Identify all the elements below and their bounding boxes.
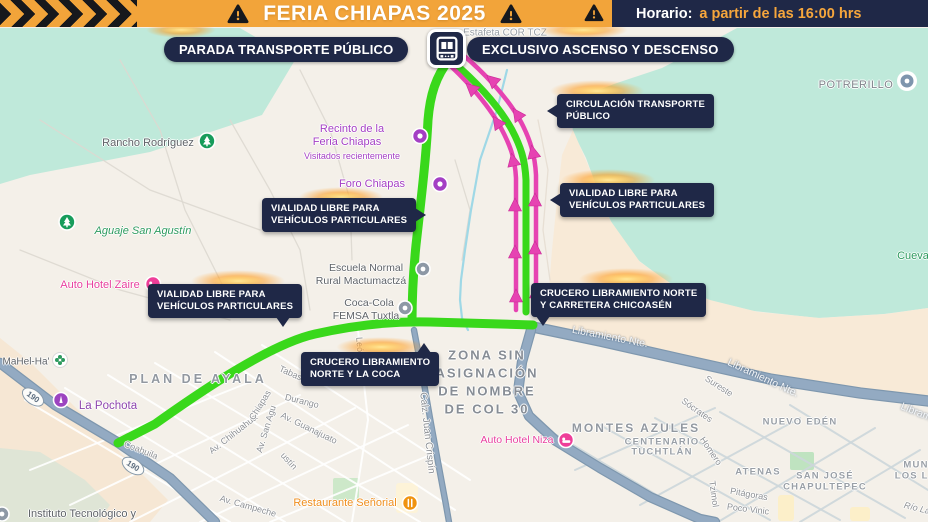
monument-pin-icon [52,391,70,409]
commercial-area [850,507,870,521]
callout-text: VEHÍCULOS PARTICULARES [271,215,407,227]
hazard-stripes [0,0,137,27]
route-callout: CIRCULACIÓN TRANSPORTEPÚBLICO [557,94,714,128]
callout-text: PÚBLICO [566,111,705,123]
purple-pin-icon [431,175,449,193]
transit-direction-arrow-icon [509,245,522,258]
callout-pointer-icon [415,208,426,222]
page-title: FERIA CHIAPAS 2025 [263,2,486,26]
map-label: Rural Mactumactzá [316,275,406,287]
map-label: Auto Hotel Niza [481,434,554,446]
transit-direction-arrow-icon [529,241,542,254]
map-label: NUEVO EDÉN [763,417,838,428]
map-label: DE NOMBRE [438,384,535,399]
locality-pin-icon [896,70,918,92]
map-label: ATENAS [735,467,781,478]
callout-text: NORTE Y LA COCA [310,369,430,381]
map-label: DE COL 30 [445,402,530,417]
route-callout: CRUCERO LIBRAMIENTO NORTEY CARRETERA CHI… [531,283,706,317]
map-label: Instituto Tecnológico y [28,508,136,520]
map-label: PLAN DE AYALA [129,372,267,386]
schedule-bar: Horario: a partir de las 16:00 hrs [612,0,928,27]
commercial-area [778,495,794,521]
map-label: Escuela Normal [329,262,403,274]
callout-text: Y CARRETERA CHICOASÉN [540,300,697,312]
route-callout: CRUCERO LIBRAMIENTONORTE Y LA COCA [301,352,439,386]
warning-triangle-icon [584,4,606,24]
callout-pointer-icon [276,317,290,327]
callout-text: VEHÍCULOS PARTICULARES [157,301,293,313]
map-label: MUNIC [903,460,928,471]
minor-street [455,160,470,260]
callout-text: VEHÍCULOS PARTICULARES [569,200,705,212]
map-label: LOS LAG [895,471,928,482]
schedule-value: a partir de las 16:00 hrs [699,6,861,22]
map-label: TUCHTLÁN [631,447,692,458]
map-label: Auto Hotel Zaire [60,279,139,291]
map-label: Feria Chiapas [313,136,381,148]
top-banner: FERIA CHIAPAS 2025 Horario: a partir de … [0,0,928,27]
public-transport-stop-badge: PARADA TRANSPORTE PÚBLICO [164,37,408,62]
map-label: La Pochota [79,400,137,412]
tree-pin-icon [58,213,76,231]
map-label: FEMSA Tuxtla [333,310,400,322]
map-label: SAN JOSÉ [796,471,854,482]
callout-text: VIALIDAD LIBRE PARA [271,203,407,215]
route-callout: VIALIDAD LIBRE PARAVEHÍCULOS PARTICULARE… [148,284,302,318]
feria-chiapas-map-flyer: Estafeta COR TCZPOTRERILLOCuevaRancho Ro… [0,0,928,522]
callout-text: VIALIDAD LIBRE PARA [157,289,293,301]
poi-pin-icon [414,260,432,278]
transit-direction-arrow-icon [510,289,523,302]
callout-pointer-icon [536,316,550,326]
map-label: Visitados recientemente [304,151,400,161]
map-label: Cueva [897,250,928,262]
map-label: Aguaje San Agustín [95,225,192,237]
map-label: Rancho Rodríguez [102,137,194,149]
banner-title-bar: FERIA CHIAPAS 2025 [137,0,612,27]
route-callout: VIALIDAD LIBRE PARAVEHÍCULOS PARTICULARE… [560,183,714,217]
map-label: CHAPULTEPEC [783,482,867,493]
warning-triangle-icon [500,4,522,24]
warning-triangle-icon [227,4,249,24]
map-label: POTRERILLO [819,79,894,91]
map-label: MONTES AZULES [572,421,700,435]
purple-pin-icon [411,127,429,145]
exclusive-boarding-badge: EXCLUSIVO ASCENSO Y DESCENSO [467,37,734,62]
tree-pin-icon [198,132,216,150]
poi-pin-icon [396,299,414,317]
route-callout: VIALIDAD LIBRE PARAVEHÍCULOS PARTICULARE… [262,198,416,232]
map-label: Restaurante Señorial [293,497,396,509]
map-label: Coca-Cola [344,297,394,309]
map-label: MaHel-Ha' [3,357,50,368]
transit-direction-arrow-icon [509,198,522,211]
map-label: ASIGNACIÓN [435,366,538,381]
hotel-pin-icon [557,431,575,449]
callout-pointer-icon [417,343,431,353]
callout-pointer-icon [550,193,561,207]
flower-pin-icon [51,351,69,369]
map-label: Recinto de la [320,123,384,135]
schedule-label: Horario: [636,6,692,22]
bus-stop-icon [427,29,466,68]
restaurant-pin-icon [401,494,419,512]
poi-pin-icon [0,505,11,522]
transit-direction-arrow-icon [529,193,542,206]
callout-text: CIRCULACIÓN TRANSPORTE [566,99,705,111]
minor-street [538,120,550,280]
callout-text: CRUCERO LIBRAMIENTO [310,357,430,369]
bus-front-icon [432,34,462,64]
callout-text: CRUCERO LIBRAMIENTO NORTE [540,288,697,300]
callout-pointer-icon [547,104,558,118]
callout-text: VIALIDAD LIBRE PARA [569,188,705,200]
map-label: ZONA SIN [448,348,526,363]
